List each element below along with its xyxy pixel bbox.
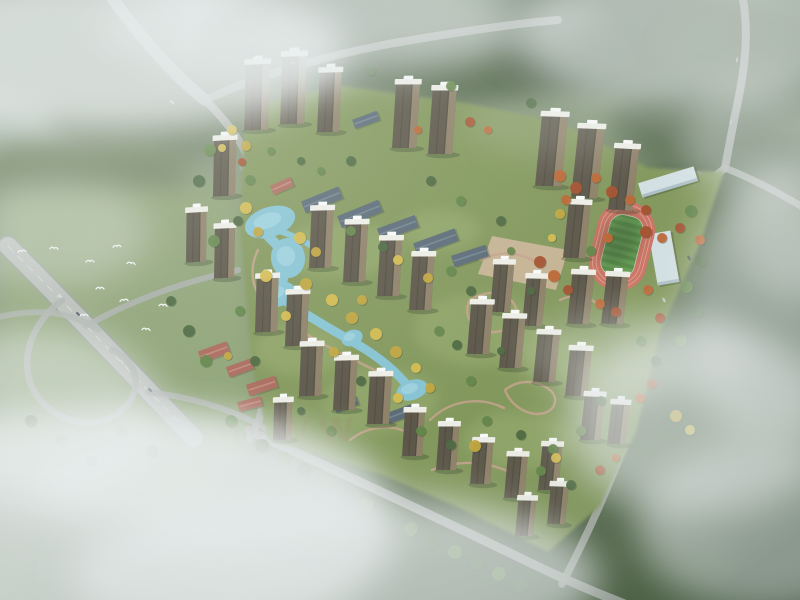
aerial-rendering-stage: WWW <box>0 0 800 600</box>
aerial-rendering: WWW <box>0 0 800 600</box>
film-grain <box>0 0 800 600</box>
